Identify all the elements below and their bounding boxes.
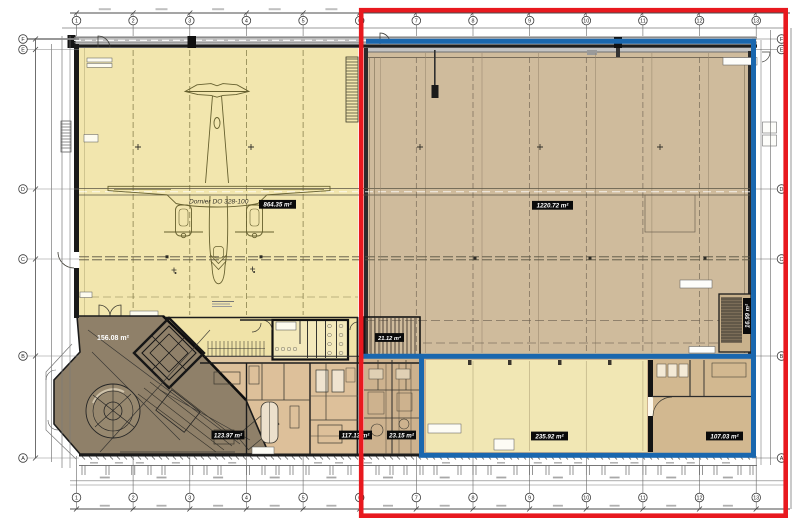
svg-text:117.13 m²: 117.13 m² [342,432,371,439]
svg-text:7: 7 [415,19,418,25]
svg-text:3: 3 [188,19,191,25]
svg-text:235.92 m²: 235.92 m² [534,433,564,440]
svg-text:E: E [780,47,784,53]
svg-text:107.03 m²: 107.03 m² [710,433,739,440]
svg-text:1: 1 [75,19,78,25]
svg-text:1220.72 m²: 1220.72 m² [537,203,570,210]
svg-text:16.99 m²: 16.99 m² [744,303,751,328]
svg-text:123.97 m²: 123.97 m² [214,432,243,439]
svg-text:D: D [21,187,25,193]
svg-text:23.15 m²: 23.15 m² [388,432,415,439]
svg-text:3: 3 [188,495,191,501]
svg-text:1: 1 [75,495,78,501]
svg-text:D: D [780,187,784,193]
svg-text:A: A [780,456,784,462]
svg-text:B: B [21,354,25,360]
svg-text:12: 12 [697,495,703,501]
svg-text:21.12 m²: 21.12 m² [377,335,402,342]
svg-text:4: 4 [245,19,248,25]
svg-text:12: 12 [697,19,703,25]
svg-text:10: 10 [583,19,589,25]
svg-text:156.08 m²: 156.08 m² [97,335,130,342]
svg-text:Dornier DO 328-100: Dornier DO 328-100 [189,199,249,206]
svg-text:2: 2 [132,19,135,25]
svg-text:C: C [21,257,25,263]
svg-text:A: A [21,456,25,462]
svg-text:13: 13 [753,19,759,25]
svg-text:8: 8 [472,495,475,501]
svg-text:C: C [780,257,784,263]
svg-text:7: 7 [415,495,418,501]
svg-text:10: 10 [583,495,589,501]
svg-text:9: 9 [528,495,531,501]
svg-text:864.35 m²: 864.35 m² [263,202,292,209]
svg-text:11: 11 [640,19,646,25]
svg-text:4: 4 [245,495,248,501]
svg-text:13: 13 [753,495,759,501]
svg-text:5: 5 [302,19,305,25]
svg-text:2: 2 [132,495,135,501]
svg-text:9: 9 [528,19,531,25]
svg-text:5: 5 [302,495,305,501]
svg-text:E: E [21,47,25,53]
svg-text:8: 8 [472,19,475,25]
svg-text:B: B [780,354,784,360]
svg-text:11: 11 [640,495,646,501]
